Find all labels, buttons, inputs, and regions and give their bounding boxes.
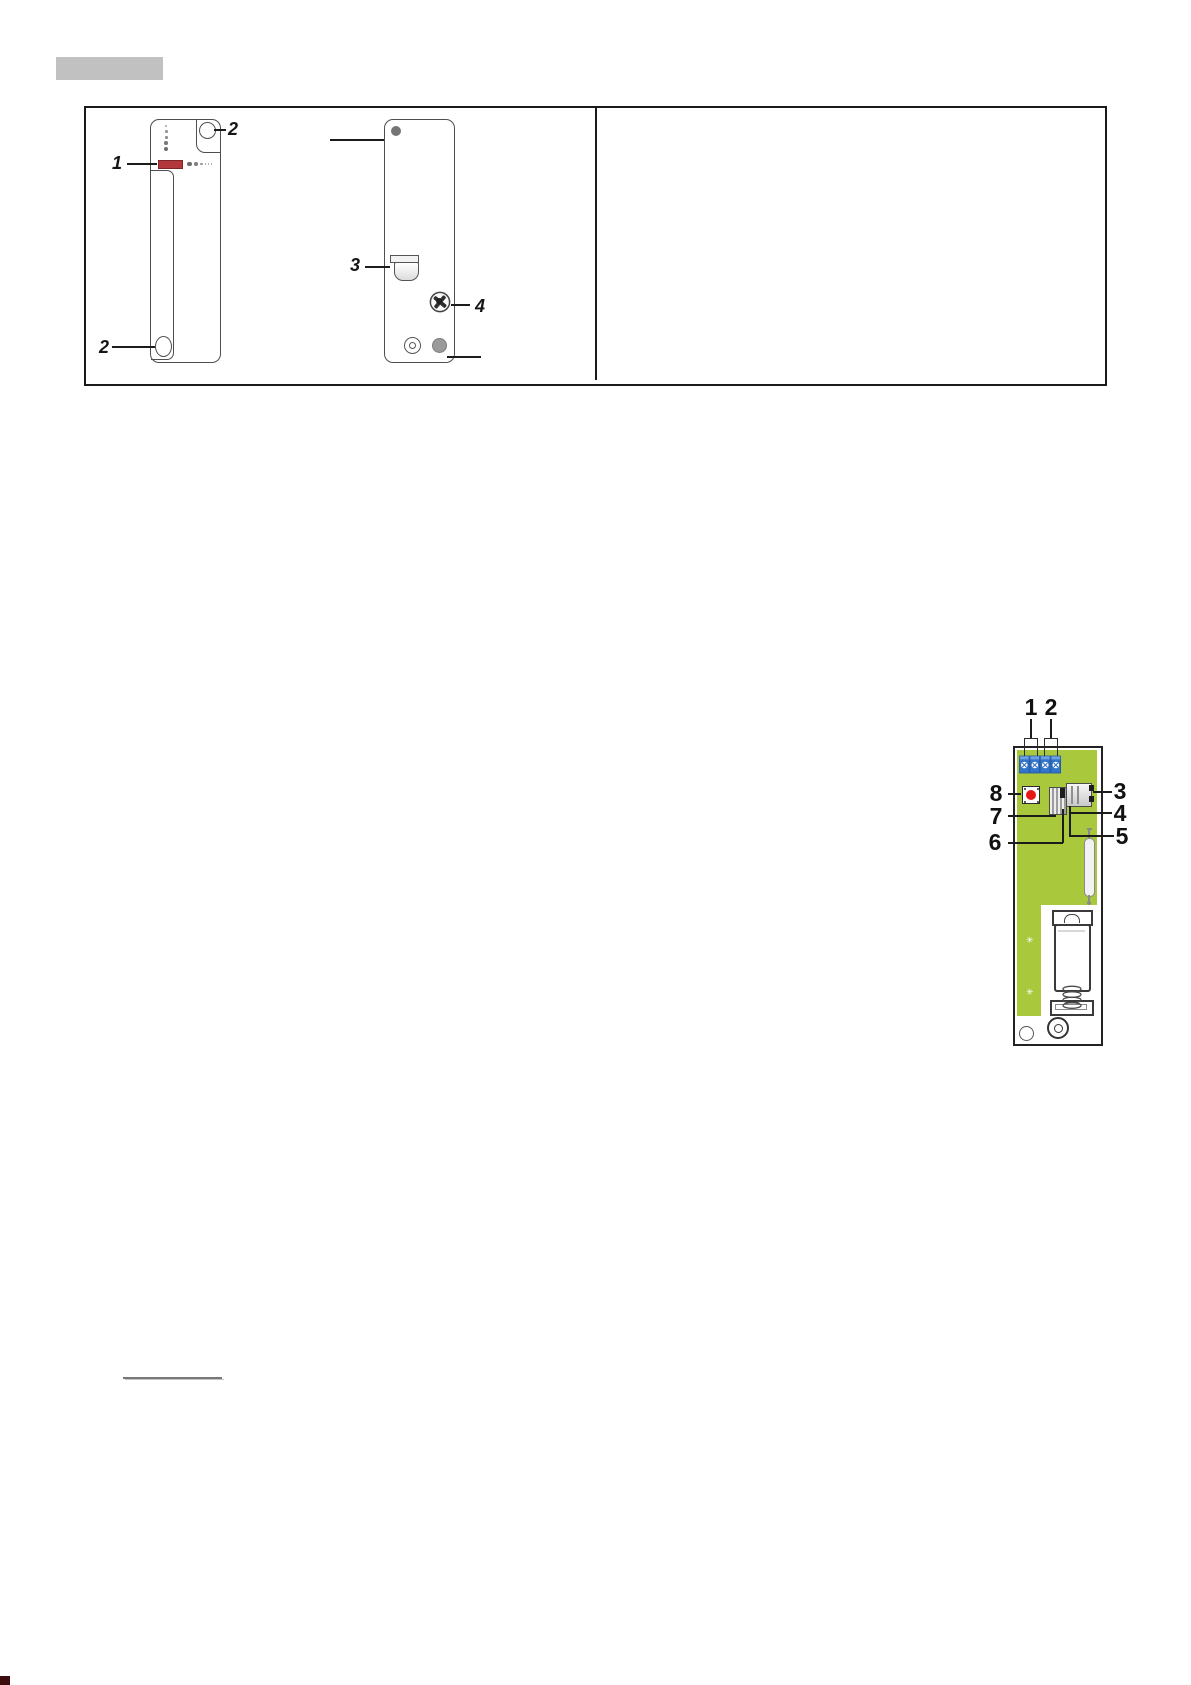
terminal-pair-bracket bbox=[1044, 738, 1058, 756]
blank-underline-shadow bbox=[125, 1379, 224, 1380]
callout-label-top-button: 2 bbox=[224, 122, 242, 137]
usb-connector bbox=[394, 262, 419, 281]
leader-line bbox=[451, 304, 470, 306]
device-figure-table bbox=[84, 106, 1107, 386]
terminal-pair-bracket bbox=[1024, 738, 1038, 756]
back-screw-hole bbox=[391, 126, 401, 136]
hole-dot bbox=[165, 125, 167, 127]
pcb-callout-1: 1 bbox=[1021, 697, 1041, 718]
battery bbox=[1054, 924, 1091, 992]
battery-shade bbox=[1058, 930, 1085, 932]
leader-line bbox=[1093, 791, 1112, 793]
battery-spring bbox=[1060, 985, 1084, 1010]
page-corner-mark bbox=[0, 1676, 10, 1685]
pcb-green-strip bbox=[1017, 905, 1041, 1016]
leader-line bbox=[127, 163, 157, 165]
hole-dot bbox=[164, 141, 168, 145]
hole-dot bbox=[200, 163, 203, 166]
leader-line bbox=[447, 356, 481, 358]
screw-mark-icon: ✳ bbox=[1026, 936, 1034, 945]
component-ridge bbox=[1077, 786, 1079, 804]
leader-line bbox=[1050, 719, 1052, 738]
leader-line bbox=[330, 139, 384, 141]
leader-line bbox=[1069, 835, 1114, 837]
hole-dot bbox=[208, 163, 210, 165]
leader-line bbox=[365, 266, 390, 268]
manual-page: 1 2 2 3 4 ✳ ✳ bbox=[0, 0, 1191, 1685]
back-ring-opening-center bbox=[409, 342, 416, 349]
pcb-callout-5: 5 bbox=[1112, 826, 1132, 847]
leader-line bbox=[214, 129, 226, 131]
leader-line bbox=[1030, 719, 1032, 738]
hole-dot bbox=[211, 163, 213, 165]
antenna-wire bbox=[1088, 829, 1090, 838]
button-pin bbox=[1037, 788, 1039, 790]
terminal-block bbox=[1019, 755, 1061, 774]
leader-line bbox=[1071, 812, 1112, 814]
device-front-top-button bbox=[199, 122, 216, 139]
device-front-door-strip bbox=[151, 170, 174, 360]
hole-dot bbox=[165, 136, 168, 139]
antenna-wire-cap bbox=[1087, 828, 1092, 830]
pcb-callout-8: 8 bbox=[986, 783, 1006, 804]
button-pin bbox=[1024, 788, 1026, 790]
hole-dot bbox=[165, 130, 168, 133]
led-indicator bbox=[158, 160, 183, 169]
callout-label-connector: 3 bbox=[346, 258, 364, 273]
callout-label-screw: 4 bbox=[471, 299, 489, 314]
pcb-callout-2: 2 bbox=[1041, 697, 1061, 718]
component-pin bbox=[1089, 796, 1094, 802]
leader-line bbox=[1069, 806, 1071, 836]
mounting-hole bbox=[1019, 1026, 1034, 1041]
figure-table-divider bbox=[595, 108, 597, 380]
callout-label-bottom-button: 2 bbox=[95, 340, 113, 355]
callout-label-led: 1 bbox=[108, 156, 126, 171]
antenna bbox=[1084, 838, 1095, 897]
section-heading-bar bbox=[56, 57, 163, 80]
leader-line bbox=[112, 346, 155, 348]
screw-head-icon bbox=[429, 291, 451, 313]
hole-dot bbox=[164, 147, 169, 152]
pcb-callout-4: 4 bbox=[1110, 803, 1130, 824]
hole-dot bbox=[205, 163, 207, 165]
button-pin bbox=[1024, 801, 1026, 803]
device-front-bottom-button bbox=[155, 336, 172, 357]
back-hole bbox=[432, 338, 447, 353]
leader-line bbox=[1008, 793, 1021, 795]
battery-clip-dome bbox=[1064, 914, 1080, 923]
component-ridge bbox=[1071, 786, 1073, 804]
programming-button bbox=[1022, 786, 1040, 804]
screw-mark-icon: ✳ bbox=[1026, 988, 1034, 997]
pcb-callout-7: 7 bbox=[986, 806, 1006, 827]
pcb-callout-3: 3 bbox=[1110, 781, 1130, 802]
pcb-callout-6: 6 bbox=[985, 832, 1005, 853]
component-pin bbox=[1060, 788, 1065, 798]
leader-line bbox=[1062, 809, 1064, 843]
mounting-hole-center bbox=[1054, 1024, 1063, 1033]
hole-dot bbox=[194, 162, 198, 166]
leader-line bbox=[1008, 815, 1056, 817]
button-pin bbox=[1037, 801, 1039, 803]
device-back-outline bbox=[384, 119, 455, 363]
terminal-screws bbox=[1020, 756, 1061, 773]
button-cap bbox=[1026, 790, 1036, 800]
hole-dot bbox=[187, 162, 192, 167]
antenna-wire-tip bbox=[1087, 901, 1091, 905]
leader-line bbox=[1008, 842, 1063, 844]
